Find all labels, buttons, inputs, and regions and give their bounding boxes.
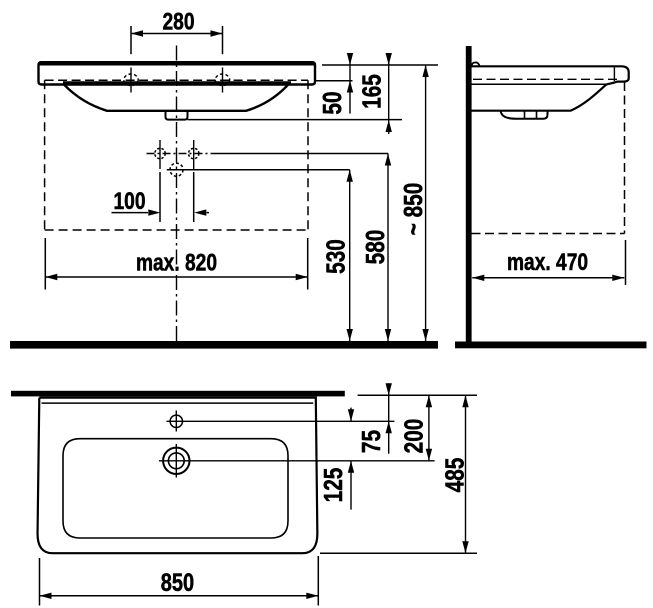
svg-text:850: 850 (161, 569, 194, 597)
svg-text:100: 100 (113, 187, 145, 215)
svg-text:485: 485 (440, 458, 469, 493)
svg-text:max. 820: max. 820 (136, 249, 217, 277)
svg-text:75: 75 (357, 430, 386, 453)
svg-text:580: 580 (361, 230, 390, 265)
svg-text:280: 280 (162, 8, 194, 36)
svg-text:~ 850: ~ 850 (399, 183, 428, 236)
svg-text:max. 470: max. 470 (507, 248, 588, 276)
svg-text:530: 530 (321, 239, 350, 274)
svg-text:125: 125 (319, 468, 348, 503)
svg-text:165: 165 (357, 74, 386, 109)
svg-text:50: 50 (318, 91, 347, 114)
svg-text:200: 200 (399, 419, 428, 454)
